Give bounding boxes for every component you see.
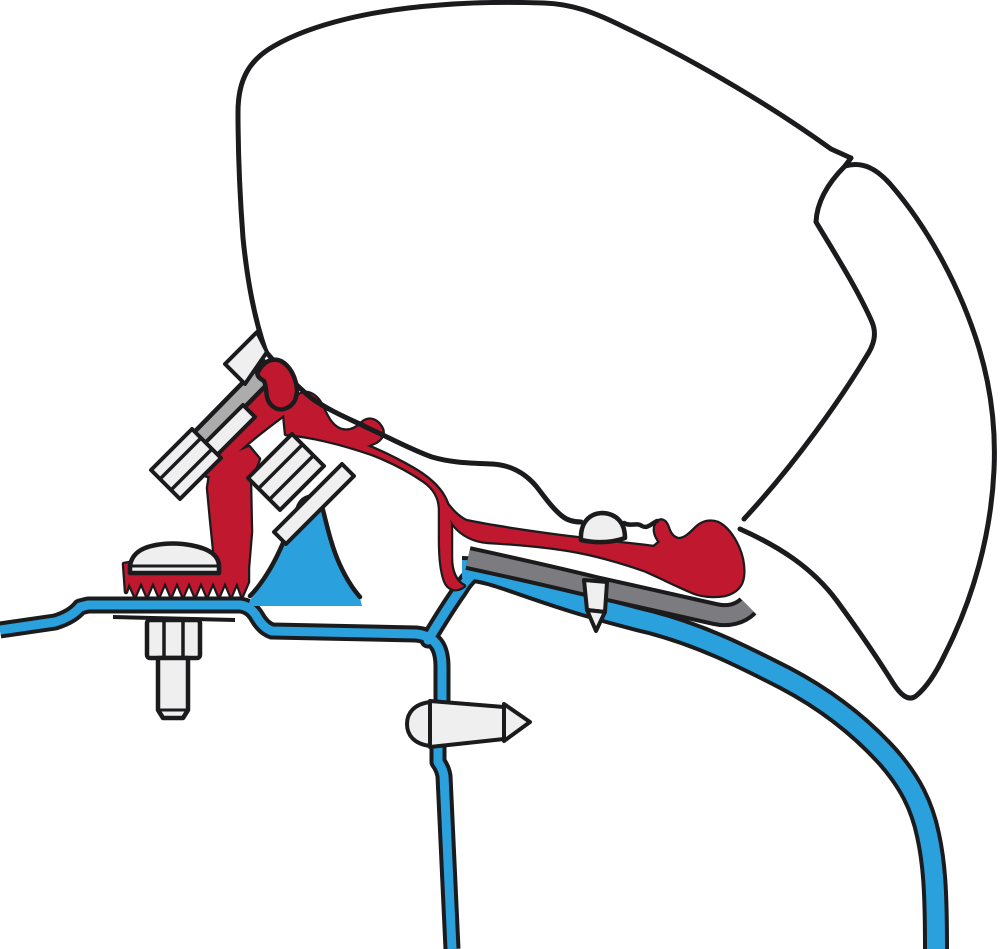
- hex-nut: [147, 620, 200, 658]
- wall-rivet-tip: [504, 704, 530, 741]
- awning-case-flap-outline: [740, 158, 994, 698]
- van-roof-outline: [462, 569, 936, 949]
- diagram-canvas: [0, 0, 1000, 949]
- awning-case-outline: [238, 2, 851, 352]
- awning-adapter-diagram: [0, 0, 1000, 949]
- roof-screw-head: [581, 513, 625, 542]
- gutter-rail-and-wall: [0, 605, 452, 949]
- roof-screw-shaft: [584, 580, 607, 612]
- awning-case-bottom-wave-line: [624, 521, 657, 527]
- gutter-rail-and-wall-outline: [0, 605, 452, 949]
- wall-rivet-head: [407, 702, 430, 746]
- dome-head-screw: [130, 544, 219, 573]
- roof-screw-tip: [587, 610, 605, 631]
- awning-case-inner-line: [744, 166, 874, 519]
- wall-rivet-shaft: [430, 701, 504, 747]
